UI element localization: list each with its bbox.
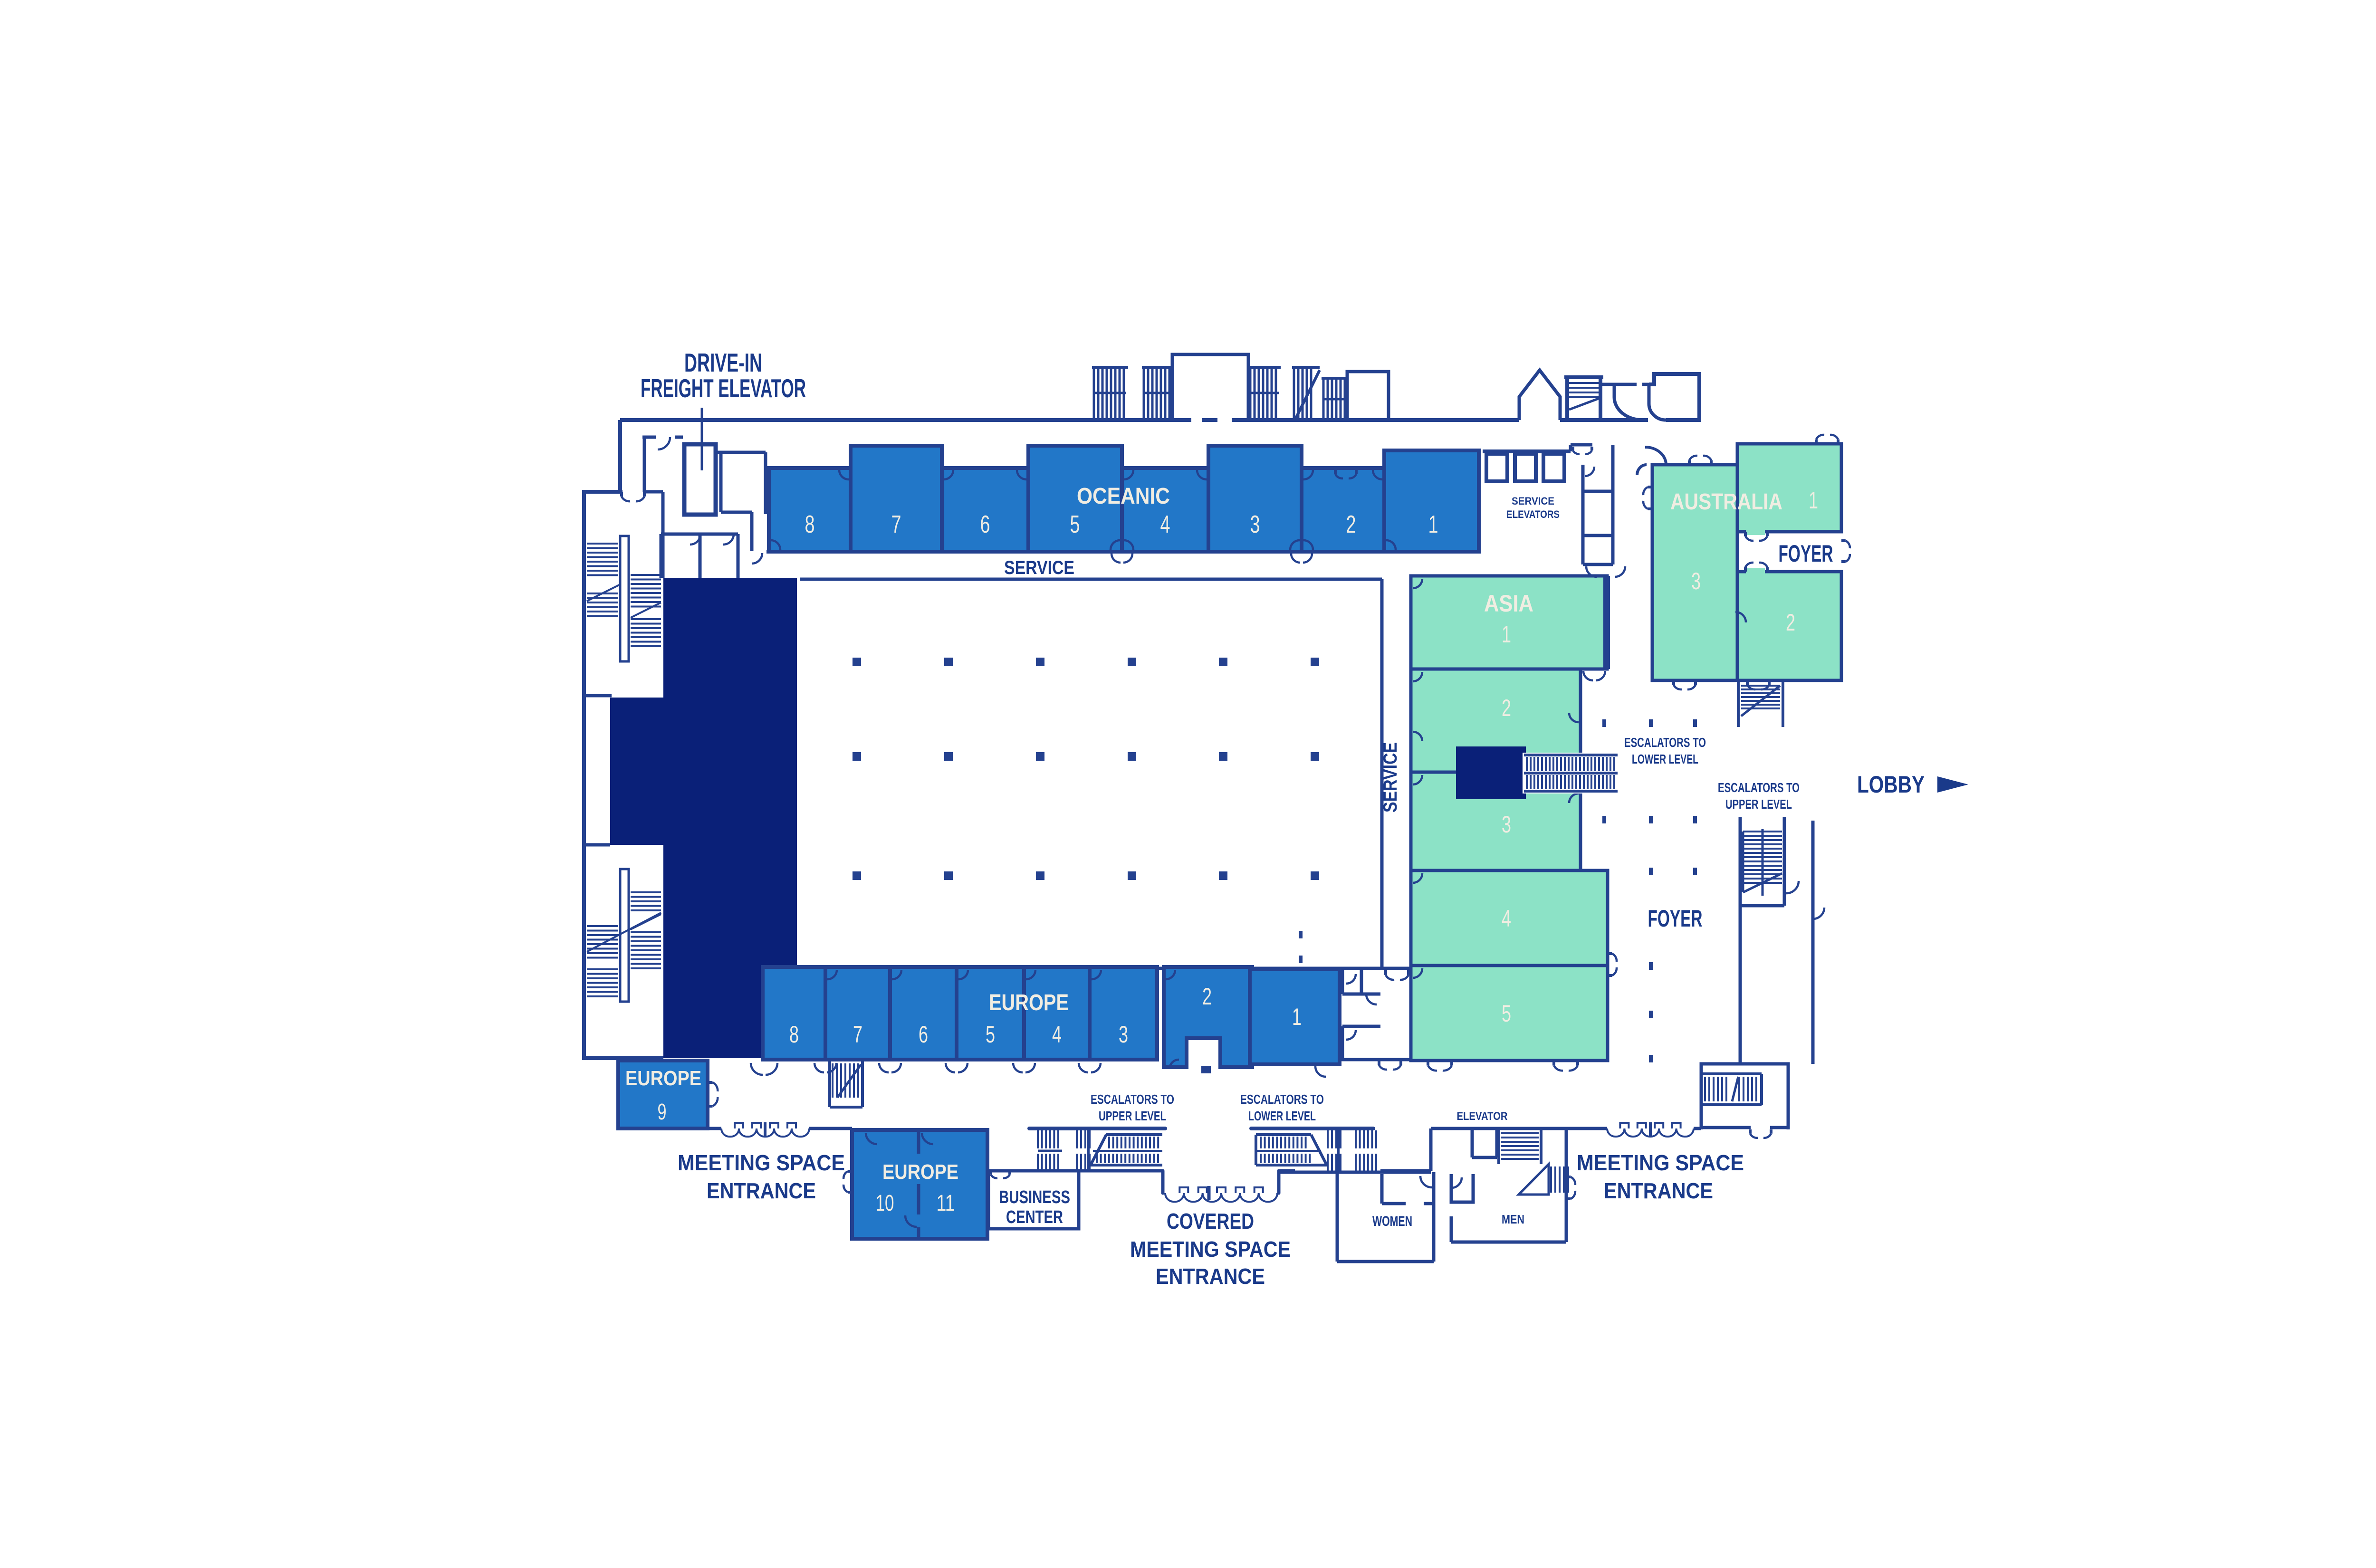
svg-text:1: 1 — [1809, 487, 1818, 514]
svg-text:SERVICE: SERVICE — [1512, 495, 1554, 507]
svg-text:COVERED: COVERED — [1167, 1209, 1254, 1233]
svg-text:LOWER LEVEL: LOWER LEVEL — [1632, 752, 1698, 766]
svg-text:ESCALATORS TO: ESCALATORS TO — [1091, 1092, 1174, 1107]
svg-text:LOBBY: LOBBY — [1857, 771, 1925, 798]
svg-text:4: 4 — [1502, 905, 1511, 932]
svg-text:LOWER LEVEL: LOWER LEVEL — [1248, 1109, 1316, 1123]
svg-text:8: 8 — [789, 1021, 799, 1048]
svg-text:MEN: MEN — [1502, 1212, 1524, 1226]
svg-text:FREIGHT ELEVATOR: FREIGHT ELEVATOR — [641, 373, 806, 403]
svg-text:2: 2 — [1346, 511, 1356, 538]
svg-text:MEETING SPACE: MEETING SPACE — [1130, 1237, 1291, 1262]
svg-text:UPPER LEVEL: UPPER LEVEL — [1725, 797, 1792, 812]
svg-text:ENTRANCE: ENTRANCE — [707, 1178, 816, 1203]
svg-text:3: 3 — [1502, 811, 1511, 838]
svg-text:ENTRANCE: ENTRANCE — [1156, 1264, 1265, 1289]
svg-text:6: 6 — [980, 511, 990, 538]
svg-text:9: 9 — [658, 1100, 667, 1125]
svg-text:SERVICE: SERVICE — [1380, 742, 1401, 813]
svg-text:BUSINESS: BUSINESS — [999, 1187, 1070, 1207]
svg-text:3: 3 — [1691, 568, 1701, 594]
svg-text:8: 8 — [805, 511, 815, 538]
svg-text:6: 6 — [919, 1021, 928, 1048]
svg-text:1: 1 — [1502, 621, 1511, 648]
svg-text:ELEVATORS: ELEVATORS — [1506, 508, 1560, 520]
svg-text:2: 2 — [1502, 695, 1511, 721]
svg-text:ESCALATORS TO: ESCALATORS TO — [1240, 1092, 1324, 1107]
svg-text:2: 2 — [1202, 983, 1212, 1010]
svg-text:2: 2 — [1786, 609, 1795, 636]
svg-text:MEETING SPACE: MEETING SPACE — [678, 1150, 845, 1175]
svg-text:1: 1 — [1428, 511, 1438, 538]
svg-text:ENTRANCE: ENTRANCE — [1604, 1178, 1713, 1203]
svg-text:FOYER: FOYER — [1648, 905, 1703, 932]
svg-text:3: 3 — [1119, 1021, 1128, 1048]
svg-text:MEETING SPACE: MEETING SPACE — [1577, 1150, 1744, 1175]
svg-text:ELEVATOR: ELEVATOR — [1457, 1110, 1508, 1123]
svg-text:ASIA: ASIA — [1484, 590, 1533, 617]
svg-text:7: 7 — [891, 511, 901, 538]
svg-text:10: 10 — [876, 1191, 894, 1216]
svg-text:OCEANIC: OCEANIC — [1077, 484, 1170, 509]
svg-text:1: 1 — [1292, 1004, 1302, 1030]
svg-text:FOYER: FOYER — [1779, 540, 1833, 567]
svg-text:EUROPE: EUROPE — [882, 1160, 958, 1184]
svg-text:AUSTRALIA: AUSTRALIA — [1670, 489, 1782, 515]
svg-text:EUROPE: EUROPE — [989, 990, 1069, 1015]
svg-text:4: 4 — [1052, 1021, 1062, 1048]
svg-text:CENTER: CENTER — [1006, 1207, 1063, 1227]
svg-text:ESCALATORS TO: ESCALATORS TO — [1624, 735, 1706, 750]
svg-text:5: 5 — [1070, 511, 1080, 538]
svg-text:4: 4 — [1160, 511, 1170, 538]
svg-text:UPPER LEVEL: UPPER LEVEL — [1099, 1109, 1166, 1123]
svg-text:3: 3 — [1250, 511, 1260, 538]
svg-text:7: 7 — [853, 1021, 862, 1048]
svg-text:5: 5 — [986, 1021, 995, 1048]
svg-text:EUROPE: EUROPE — [625, 1067, 701, 1090]
svg-text:11: 11 — [937, 1191, 955, 1216]
svg-text:ESCALATORS TO: ESCALATORS TO — [1718, 780, 1800, 795]
svg-text:WOMEN: WOMEN — [1372, 1214, 1412, 1229]
svg-text:DRIVE-IN: DRIVE-IN — [684, 348, 762, 377]
svg-text:SERVICE: SERVICE — [1004, 557, 1074, 578]
svg-text:5: 5 — [1502, 1000, 1511, 1027]
